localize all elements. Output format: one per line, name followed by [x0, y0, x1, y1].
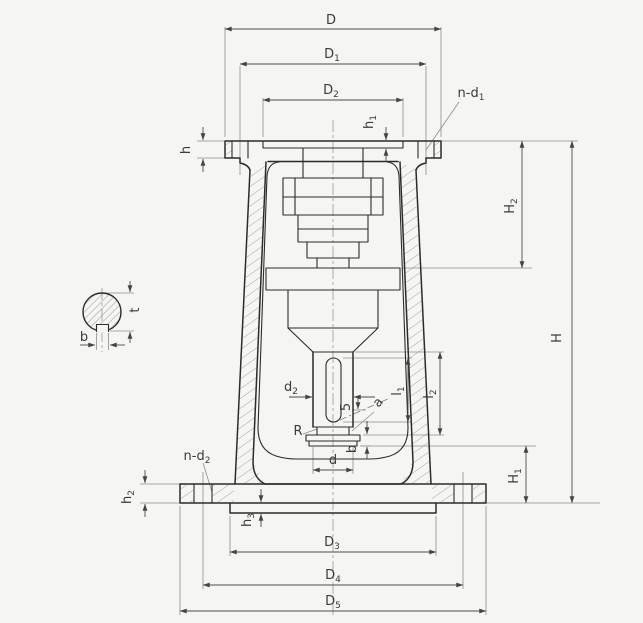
stem-slot — [326, 358, 341, 422]
dim-label-h1: h1 — [362, 115, 379, 129]
dim-label-b-stem: b — [345, 445, 360, 453]
dim-label-a: a — [370, 395, 387, 411]
leader-a — [352, 412, 374, 431]
dimension-lines — [80, 29, 572, 611]
dim-label-R: R — [293, 424, 302, 439]
technical-drawing: D D1 D2 n-d1 h1 h H2 H t b d2 l1 l2 a 5 … — [0, 0, 643, 623]
bottom-flange-hatch-1 — [181, 485, 193, 502]
dim-label-h3: h3 — [240, 513, 257, 527]
dim-label-d: d — [329, 453, 337, 468]
dim-label-D: D — [326, 13, 336, 28]
dim-label-D3: D3 — [324, 535, 340, 552]
dim-label-b-keyway: b — [80, 330, 88, 345]
dim-label-D4: D4 — [325, 568, 341, 585]
drawing-canvas: D D1 D2 n-d1 h1 h H2 H t b d2 l1 l2 a 5 … — [0, 0, 643, 623]
dim-label-n-d2: n-d2 — [184, 449, 211, 466]
dim-label-h2: h2 — [120, 490, 137, 504]
shaft-section-detail — [83, 293, 121, 333]
top-flange-right-hatch — [434, 142, 440, 157]
keyway-notch-mask — [97, 325, 109, 333]
leader-n-d2 — [203, 463, 212, 492]
bottom-flange-hatch-3 — [432, 485, 453, 502]
dimension-labels: D D1 D2 n-d1 h1 h H2 H t b d2 l1 l2 a 5 … — [80, 13, 565, 611]
extension-lines — [97, 27, 601, 615]
dim-label-H2: H2 — [503, 198, 520, 214]
bottom-flange-hatch-2 — [213, 485, 234, 502]
dim-label-D1: D1 — [324, 47, 340, 64]
dim-label-h: h — [179, 146, 194, 154]
dim-label-D2: D2 — [323, 83, 339, 100]
dim-label-d2: d2 — [284, 380, 298, 397]
bottom-flange-hatch-4 — [473, 485, 485, 502]
top-flange-left-hatch — [226, 142, 232, 157]
dim-label-5: 5 — [339, 403, 354, 411]
dim-label-D5: D5 — [325, 594, 341, 611]
dim-label-n-d1: n-d1 — [458, 86, 485, 103]
leader-n-d1 — [426, 102, 459, 150]
section-hatching — [181, 142, 485, 502]
leader-R — [303, 429, 317, 434]
dim-label-H1: H1 — [507, 468, 524, 484]
dim-label-l1: l1 — [390, 386, 407, 395]
dim-label-t: t — [128, 307, 143, 312]
dim-label-H: H — [550, 333, 565, 343]
